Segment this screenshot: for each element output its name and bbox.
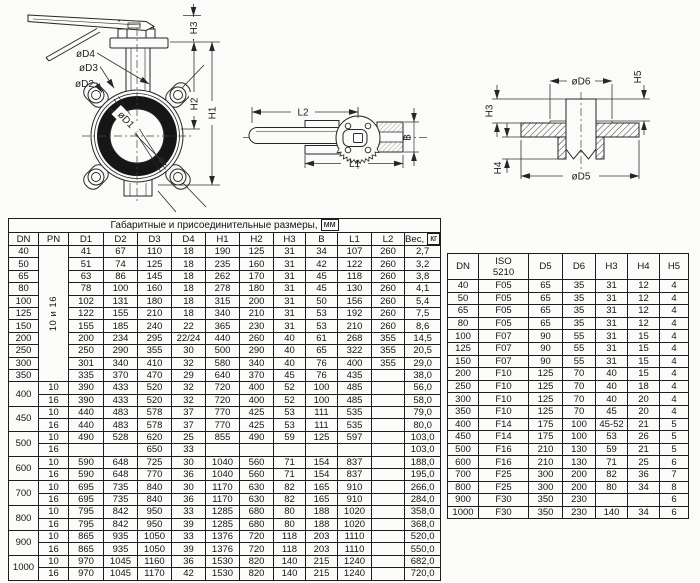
cell: 15: [628, 355, 660, 368]
cell: 1045: [104, 568, 138, 580]
section-view-drawing: øD6 H5 H3 H4 øD5: [485, 70, 651, 182]
cell: 40: [596, 368, 628, 381]
cell: 140: [274, 568, 306, 580]
cell: 140: [274, 555, 306, 567]
cell: 215: [306, 555, 338, 567]
cell: 16: [39, 419, 69, 431]
cell: 260: [372, 246, 405, 258]
cell: 50: [9, 258, 39, 270]
cell: 12: [628, 317, 660, 330]
cell: 18: [172, 283, 206, 295]
cell: 290: [104, 345, 138, 357]
cell: 7,5: [405, 307, 441, 319]
cell: 38,0: [405, 369, 441, 381]
cell: 680: [240, 518, 274, 530]
cell: F10: [479, 380, 529, 393]
cell: 695: [69, 481, 104, 493]
cell: 76: [306, 369, 338, 381]
cell: 31: [596, 355, 628, 368]
cell: 76: [306, 357, 338, 369]
cell: 53: [274, 419, 306, 431]
cell: 970: [69, 555, 104, 567]
cell: 100: [9, 295, 39, 307]
cell: 700: [448, 468, 479, 481]
cell: 53: [306, 320, 338, 332]
cell: 8,6: [405, 320, 441, 332]
cell: 170: [240, 270, 274, 282]
cell: 355: [372, 357, 405, 369]
cell: 840: [138, 481, 172, 493]
cell: 102: [69, 295, 104, 307]
cell: 300: [529, 481, 563, 494]
cell: F07: [479, 342, 529, 355]
cell: [372, 530, 405, 542]
cell: 400: [9, 382, 39, 407]
cell: 155: [69, 320, 104, 332]
cell: 150: [448, 355, 479, 368]
cell: 103,0: [405, 444, 441, 456]
cell: 865: [69, 530, 104, 542]
cell: 65: [9, 270, 39, 282]
cell: 58,0: [405, 394, 441, 406]
cell: 35: [563, 305, 596, 318]
cell: 837: [338, 469, 372, 481]
cell: 14,5: [405, 332, 441, 344]
cell: 15: [628, 368, 660, 381]
cell: 82: [274, 493, 306, 505]
cell: 15: [628, 342, 660, 355]
cell: 65: [529, 292, 563, 305]
cell: 15: [628, 330, 660, 343]
column-header: D5: [529, 254, 563, 280]
cell: 4: [660, 305, 689, 318]
cell: 20: [628, 393, 660, 406]
cell: 528: [104, 431, 138, 443]
cell: 590: [69, 469, 104, 481]
cell: 1020: [338, 506, 372, 518]
cell: 45: [306, 283, 338, 295]
top-view-drawing: L2 L1 B: [243, 107, 428, 172]
cell: 340: [240, 357, 274, 369]
cell: 32: [172, 357, 206, 369]
cell: 175: [529, 418, 563, 431]
cell: 130: [563, 443, 596, 456]
cell: 31: [274, 258, 306, 270]
cell: 33: [172, 506, 206, 518]
cell: 550,0: [405, 543, 441, 555]
cell: 125: [138, 258, 172, 270]
cell: 355: [138, 345, 172, 357]
cell: 154: [306, 469, 338, 481]
cell: 20: [628, 405, 660, 418]
cell: 425: [240, 407, 274, 419]
cell: 25: [172, 431, 206, 443]
cell: 720: [206, 394, 240, 406]
cell: 284,0: [405, 493, 441, 505]
cell: 390: [69, 394, 104, 406]
cell: 80: [9, 283, 39, 295]
cell: 70: [563, 380, 596, 393]
cell: 100: [104, 283, 138, 295]
cell: 29,0: [405, 357, 441, 369]
cell: 350: [448, 405, 479, 418]
cell: [372, 518, 405, 530]
cell: 390: [69, 382, 104, 394]
cell: 278: [206, 283, 240, 295]
column-header: Вес,кг: [405, 233, 441, 246]
cell: 34: [628, 506, 660, 519]
cell: 520,0: [405, 530, 441, 542]
cell: 720,0: [405, 568, 441, 580]
table-title: Габаритные и присоединительные размеры,м…: [9, 219, 441, 233]
cell: [372, 382, 405, 394]
cell: 358,0: [405, 506, 441, 518]
cell: [306, 444, 338, 456]
cell: [372, 493, 405, 505]
cell: 1170: [206, 493, 240, 505]
cell: 21: [628, 443, 660, 456]
cell: 39: [172, 543, 206, 555]
cell: 18: [172, 270, 206, 282]
cell: 500: [9, 431, 39, 456]
cell: 40: [274, 357, 306, 369]
cell: 200: [9, 332, 39, 344]
cell: 5: [660, 443, 689, 456]
cell: [372, 506, 405, 518]
cell: 500: [206, 345, 240, 357]
cell: 842: [104, 518, 138, 530]
cell: [338, 444, 372, 456]
cell: 37: [172, 407, 206, 419]
cell: 1110: [338, 543, 372, 555]
cell: 260: [372, 295, 405, 307]
cell: 4: [660, 317, 689, 330]
cell: F25: [479, 468, 529, 481]
pn-rotated-label: 10 и 16: [48, 296, 60, 331]
cell: 1045: [104, 555, 138, 567]
cell: 301: [69, 357, 104, 369]
cell: 16: [39, 543, 69, 555]
cell: 22/24: [172, 332, 206, 344]
cell: 82: [596, 468, 628, 481]
cell: 260: [240, 332, 274, 344]
cell: 795: [69, 506, 104, 518]
cell: 156: [338, 295, 372, 307]
cell: [372, 555, 405, 567]
cell: 4: [660, 330, 689, 343]
cell: 59: [274, 431, 306, 443]
cell: 180: [240, 283, 274, 295]
cell: 4: [660, 405, 689, 418]
cell: 107: [338, 246, 372, 258]
cell: F30: [479, 494, 529, 507]
cell: 210: [529, 456, 563, 469]
cell: 260: [372, 258, 405, 270]
cell: 1285: [206, 518, 240, 530]
cell: 1020: [338, 518, 372, 530]
cell: 10: [39, 481, 69, 493]
cell: 350: [529, 506, 563, 519]
cell: 400: [338, 357, 372, 369]
cell: [596, 494, 628, 507]
cell: 230: [563, 494, 596, 507]
cell: 145: [138, 270, 172, 282]
column-header: D3: [138, 233, 172, 246]
column-header: H2: [240, 233, 274, 246]
cell: 90: [529, 330, 563, 343]
cell: 40: [596, 380, 628, 393]
column-header: DN: [9, 233, 39, 246]
cell: 578: [138, 407, 172, 419]
cell: 10 и 16: [39, 246, 69, 382]
column-header: H1: [206, 233, 240, 246]
cell: 36: [172, 469, 206, 481]
cell: 1040: [206, 456, 240, 468]
cell: 118: [274, 530, 306, 542]
cell: [372, 469, 405, 481]
cell: 80: [274, 506, 306, 518]
cell: 350: [9, 369, 39, 381]
cell: 4: [660, 368, 689, 381]
cell: 25: [628, 456, 660, 469]
cell: 53: [306, 307, 338, 319]
cell: 210: [338, 320, 372, 332]
cell: F25: [479, 481, 529, 494]
cell: 1170: [206, 481, 240, 493]
cell: 4: [660, 355, 689, 368]
cell: 10: [39, 407, 69, 419]
dim-label-l2: L2: [297, 108, 309, 119]
cell: F16: [479, 443, 529, 456]
cell: 122: [338, 258, 372, 270]
cell: 10: [39, 530, 69, 542]
cell: 8: [660, 481, 689, 494]
cell: 125: [529, 380, 563, 393]
cell: 935: [104, 543, 138, 555]
cell: 36: [172, 493, 206, 505]
cell: 640: [206, 369, 240, 381]
cell: 65: [529, 280, 563, 293]
column-header: PN: [39, 233, 69, 246]
cell: 30: [172, 481, 206, 493]
cell: 122: [69, 307, 104, 319]
cell: 520: [138, 394, 172, 406]
iso-flange-table: DNISO5210D5D6H3H4H540F0565353112450F0565…: [447, 253, 689, 519]
cell: 950: [138, 506, 172, 518]
cell: 400: [448, 418, 479, 431]
column-header: D1: [69, 233, 104, 246]
cell: 125: [529, 393, 563, 406]
cell: [69, 444, 104, 456]
cell: 4: [660, 280, 689, 293]
cell: 600: [448, 456, 479, 469]
cell: [372, 431, 405, 443]
cell: 2,7: [405, 246, 441, 258]
dim-label-h2: H2: [190, 97, 201, 110]
cell: 165: [306, 493, 338, 505]
cell: 200: [563, 481, 596, 494]
cell: 10: [39, 555, 69, 567]
cell: 435: [338, 369, 372, 381]
cell: 490: [240, 431, 274, 443]
cell: 620: [138, 431, 172, 443]
front-view-drawing: øD4 øD3 øD2 øD1 H3 H2 H1: [28, 4, 220, 212]
cell: 59: [596, 443, 628, 456]
cell: 485: [338, 394, 372, 406]
cell: 10: [39, 431, 69, 443]
cell: 190: [206, 246, 240, 258]
cell: F14: [479, 418, 529, 431]
dim-label-d5: øD5: [572, 172, 591, 183]
cell: 18: [172, 246, 206, 258]
cell: 31: [274, 246, 306, 258]
cell: 65: [529, 305, 563, 318]
cell: 4: [660, 393, 689, 406]
cell: 682,0: [405, 555, 441, 567]
cell: 160: [240, 258, 274, 270]
cell: 630: [240, 493, 274, 505]
cell: 35: [563, 292, 596, 305]
cell: 350: [529, 494, 563, 507]
cell: 440: [69, 419, 104, 431]
cell: 440: [206, 332, 240, 344]
cell: 250: [69, 345, 104, 357]
cell: 40: [274, 332, 306, 344]
cell: 483: [104, 419, 138, 431]
dimensions-table: Габаритные и присоединительные размеры,м…: [8, 218, 441, 581]
column-header: H4: [628, 254, 660, 280]
cell: 56,0: [405, 382, 441, 394]
cell: 425: [240, 419, 274, 431]
cell: 31: [274, 283, 306, 295]
cell: 1530: [206, 568, 240, 580]
dim-label-h4: H4: [493, 161, 504, 174]
cell: 78: [69, 283, 104, 295]
cell: 3,8: [405, 270, 441, 282]
cell: 40: [9, 246, 39, 258]
cell: 5,4: [405, 295, 441, 307]
cell: 400: [240, 394, 274, 406]
cell: 100: [448, 330, 479, 343]
cell: 188,0: [405, 456, 441, 468]
cell: 560: [240, 469, 274, 481]
column-header: ISO5210: [479, 254, 529, 280]
column-header: L2: [372, 233, 405, 246]
cell: 31: [596, 317, 628, 330]
cell: 71: [274, 456, 306, 468]
cell: 31: [274, 307, 306, 319]
cell: 1110: [338, 530, 372, 542]
cell: 1240: [338, 555, 372, 567]
cell: 315: [206, 295, 240, 307]
cell: 4: [660, 292, 689, 305]
cell: [372, 394, 405, 406]
cell: 100: [306, 394, 338, 406]
cell: 26: [628, 431, 660, 444]
cell: 18: [172, 295, 206, 307]
cell: 1530: [206, 555, 240, 567]
cell: 34: [628, 481, 660, 494]
cell: 335: [69, 369, 104, 381]
cell: 910: [338, 493, 372, 505]
cell: [372, 407, 405, 419]
cell: 560: [240, 456, 274, 468]
cell: 295: [138, 332, 172, 344]
cell: 580: [206, 357, 240, 369]
cell: [372, 444, 405, 456]
cell: 1040: [206, 469, 240, 481]
cell: 837: [338, 456, 372, 468]
cell: 597: [338, 431, 372, 443]
cell: 720: [206, 382, 240, 394]
cell: 820: [240, 568, 274, 580]
cell: 100: [306, 382, 338, 394]
cell: 240: [138, 320, 172, 332]
cell: 10: [39, 506, 69, 518]
cell: 1376: [206, 530, 240, 542]
cell: 100: [563, 431, 596, 444]
cell: 700: [9, 481, 39, 506]
cell: 720: [240, 543, 274, 555]
cell: 70: [563, 393, 596, 406]
cell: 165: [306, 481, 338, 493]
iso-table-wrap: DNISO5210D5D6H3H4H540F0565353112450F0565…: [447, 253, 689, 519]
cell: F05: [479, 292, 529, 305]
cell: F10: [479, 368, 529, 381]
cell: 63: [69, 270, 104, 282]
cell: 71: [596, 456, 628, 469]
cell: [206, 444, 240, 456]
cell: 36: [172, 555, 206, 567]
cell: 29: [172, 369, 206, 381]
cell: 45: [596, 405, 628, 418]
cell: [628, 494, 660, 507]
cell: 118: [338, 270, 372, 282]
cell: 45: [274, 369, 306, 381]
cell: 720: [240, 530, 274, 542]
cell: 578: [138, 419, 172, 431]
technical-drawings: øD4 øD3 øD2 øD1 H3 H2 H1: [0, 0, 700, 215]
cell: 18: [172, 307, 206, 319]
cell: 110: [138, 246, 172, 258]
cell: [104, 444, 138, 456]
dim-label-h3-section: H3: [485, 104, 496, 117]
cell: 118: [274, 543, 306, 555]
column-header: B: [306, 233, 338, 246]
cell: 131: [104, 295, 138, 307]
cell: [372, 543, 405, 555]
cell: 648: [104, 469, 138, 481]
cell: 36: [628, 468, 660, 481]
cell: 770: [206, 419, 240, 431]
dim-label-b: B: [403, 134, 414, 141]
cell: 79,0: [405, 407, 441, 419]
cell: 440: [69, 407, 104, 419]
cell: 600: [9, 456, 39, 481]
cell: 910: [338, 481, 372, 493]
dim-label-l1: L1: [349, 159, 361, 170]
cell: 12: [628, 280, 660, 293]
cell: 490: [69, 431, 104, 443]
cell: 74: [104, 258, 138, 270]
cell: 40: [448, 280, 479, 293]
cell: 5: [660, 431, 689, 444]
cell: 483: [104, 407, 138, 419]
cell: 230: [240, 320, 274, 332]
cell: 800: [448, 481, 479, 494]
cell: 55: [563, 355, 596, 368]
cell: 485: [338, 382, 372, 394]
